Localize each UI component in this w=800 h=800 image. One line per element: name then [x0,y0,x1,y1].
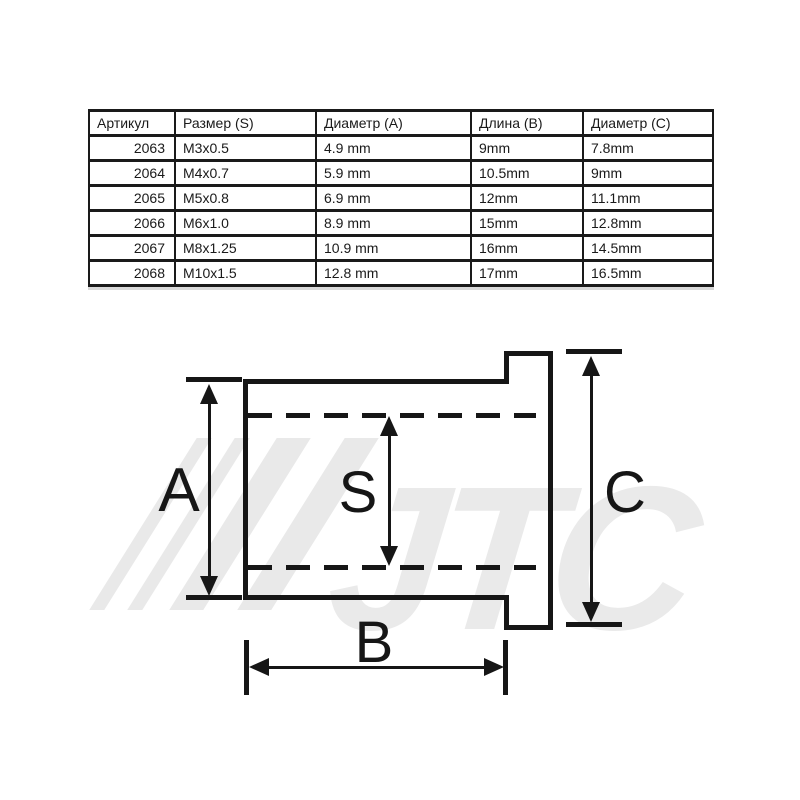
cell-diameter-a: 8.9 mm [316,211,471,236]
cell-length-b: 12mm [471,186,583,211]
body-top-line [243,379,509,384]
cell-diameter-c: 16.5mm [583,261,713,286]
dim-c-arrow-down-icon [582,602,600,622]
flange-top-line [504,351,553,356]
cell-size: M3x0.5 [175,136,316,161]
dim-s-arrow-up-icon [380,416,398,436]
cell-article: 2065 [89,186,175,211]
header-size-s: Размер (S) [175,111,316,136]
cell-article: 2063 [89,136,175,161]
dim-a-tick-top [186,377,242,382]
table-row: 2066 M6x1.0 8.9 mm 15mm 12.8mm [89,211,713,236]
dim-a-arrow-up-icon [200,384,218,404]
cell-diameter-c: 14.5mm [583,236,713,261]
flange-right-line [548,351,553,630]
cell-diameter-c: 12.8mm [583,211,713,236]
cell-length-b: 9mm [471,136,583,161]
cell-diameter-a: 10.9 mm [316,236,471,261]
cell-diameter-a: 12.8 mm [316,261,471,286]
header-diameter-a: Диаметр (A) [316,111,471,136]
cell-size: M5x0.8 [175,186,316,211]
cell-length-b: 15mm [471,211,583,236]
flange-step-down-line [504,597,509,630]
header-length-b: Длина (B) [471,111,583,136]
cell-article: 2064 [89,161,175,186]
dim-c-arrow-up-icon [582,356,600,376]
dim-b-arrow-right-icon [484,658,504,676]
cell-diameter-c: 11.1mm [583,186,713,211]
dim-c-line [590,370,593,610]
dim-a-arrow-down-icon [200,576,218,596]
cell-article: 2067 [89,236,175,261]
dim-label-s: S [330,462,386,524]
table-row: 2067 M8x1.25 10.9 mm 16mm 14.5mm [89,236,713,261]
size-table: Артикул Размер (S) Диаметр (A) Длина (B)… [88,109,714,287]
table-row: 2065 M5x0.8 6.9 mm 12mm 11.1mm [89,186,713,211]
product-spec-sheet: Артикул Размер (S) Диаметр (A) Длина (B)… [0,0,800,800]
size-table-container: Артикул Размер (S) Диаметр (A) Длина (B)… [88,109,714,287]
dim-c-tick-bottom [566,622,622,627]
cell-size: M4x0.7 [175,161,316,186]
header-article: Артикул [89,111,175,136]
cell-article: 2068 [89,261,175,286]
cell-size: M8x1.25 [175,236,316,261]
dim-label-b: B [346,612,402,674]
cell-diameter-a: 6.9 mm [316,186,471,211]
dim-s-arrow-down-icon [380,546,398,566]
dim-label-c: C [596,462,654,524]
cell-length-b: 10.5mm [471,161,583,186]
cell-article: 2066 [89,211,175,236]
dim-c-tick-top [566,349,622,354]
cell-diameter-a: 4.9 mm [316,136,471,161]
table-row: 2068 M10x1.5 12.8 mm 17mm 16.5mm [89,261,713,286]
cell-diameter-c: 7.8mm [583,136,713,161]
dim-s-line [388,430,391,550]
table-row: 2063 M3x0.5 4.9 mm 9mm 7.8mm [89,136,713,161]
cell-length-b: 16mm [471,236,583,261]
header-row: Артикул Размер (S) Диаметр (A) Длина (B)… [89,111,713,136]
table-row: 2064 M4x0.7 5.9 mm 10.5mm 9mm [89,161,713,186]
cell-size: M10x1.5 [175,261,316,286]
header-diameter-c: Диаметр (C) [583,111,713,136]
flange-bottom-line [504,625,553,630]
body-bottom-line [243,595,509,600]
dim-a-line [208,398,211,584]
cell-size: M6x1.0 [175,211,316,236]
cell-length-b: 17mm [471,261,583,286]
cell-diameter-a: 5.9 mm [316,161,471,186]
dim-b-arrow-left-icon [249,658,269,676]
cell-diameter-c: 9mm [583,161,713,186]
dim-label-a: A [150,460,208,522]
